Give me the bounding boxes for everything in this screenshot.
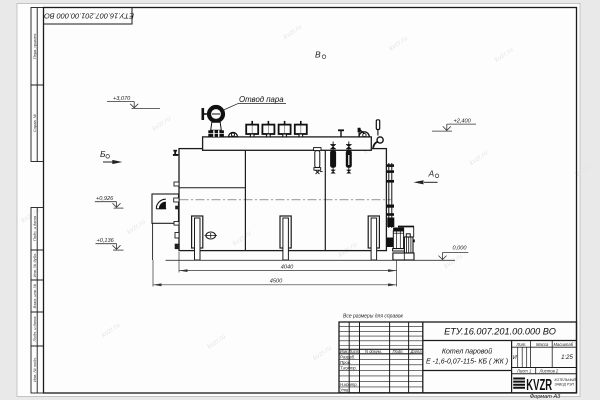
svg-text:Дата: Дата (410, 349, 423, 354)
svg-text:Отвод пара: Отвод пара (239, 95, 284, 104)
svg-text:Формат А3: Формат А3 (530, 394, 561, 400)
svg-text:Подп. и дата: Подп. и дата (32, 215, 37, 241)
svg-text:Т.контр.: Т.контр. (340, 366, 357, 371)
svg-text:В: В (315, 50, 321, 60)
svg-text:КОТЕЛЬНЫЙ: КОТЕЛЬНЫЙ (555, 378, 577, 382)
svg-text:+0,926: +0,926 (96, 196, 114, 202)
svg-text:4500: 4500 (270, 279, 283, 285)
svg-text:ЕТУ.16.007.201.00.000 ВО: ЕТУ.16.007.201.00.000 ВО (444, 326, 556, 336)
svg-text:Подп. и дата: Подп. и дата (32, 316, 37, 342)
svg-text:Б: Б (100, 149, 106, 159)
svg-text:4040: 4040 (281, 264, 294, 270)
svg-text:1:25: 1:25 (561, 355, 573, 361)
svg-text:И: И (513, 355, 517, 361)
svg-text:Котел паровой: Котел паровой (442, 348, 492, 356)
svg-text:Масса: Масса (536, 342, 549, 347)
svg-text:+0,136: +0,136 (97, 238, 115, 244)
svg-text:Листов 2: Листов 2 (539, 368, 559, 373)
svg-text:Пров.: Пров. (340, 360, 351, 365)
svg-text:+2,400: +2,400 (454, 118, 472, 124)
svg-text:Н.контр.: Н.контр. (340, 382, 358, 387)
svg-text:ЗАВОД РЭП: ЗАВОД РЭП (555, 383, 575, 387)
svg-text:А: А (428, 169, 435, 179)
svg-text:N докум.: N докум. (365, 349, 382, 354)
svg-text:ЕТУ.16.007.201.00.000 ВО: ЕТУ.16.007.201.00.000 ВО (44, 11, 134, 20)
svg-text:Взам. инв. №: Взам. инв. № (32, 283, 37, 308)
svg-text:0,000: 0,000 (453, 245, 468, 251)
svg-text:Лист 1: Лист 1 (516, 368, 531, 373)
svg-text:Инв. № дубл.: Инв. № дубл. (32, 253, 37, 278)
svg-text:Справ. №: Справ. № (32, 113, 37, 132)
svg-text:Все размеры для справок: Все размеры для справок (343, 313, 404, 319)
svg-text:Изм.Лист: Изм.Лист (340, 349, 360, 354)
svg-text:Е -1,6-0,07-115- КБ ( ЖК ): Е -1,6-0,07-115- КБ ( ЖК ) (426, 359, 508, 366)
svg-text:Утв.: Утв. (340, 388, 350, 393)
svg-text:Инв. № подл.: Инв. № подл. (32, 357, 37, 382)
svg-text:Масштаб: Масштаб (554, 342, 574, 347)
svg-text:Подп.: Подп. (393, 349, 404, 354)
svg-text:Лит.: Лит. (516, 342, 527, 347)
svg-text:Перв. примен.: Перв. примен. (32, 33, 37, 60)
svg-text:+3,070: +3,070 (113, 96, 131, 102)
svg-text:KVZR: KVZR (526, 375, 552, 393)
svg-text:Разраб.: Разраб. (340, 354, 355, 359)
